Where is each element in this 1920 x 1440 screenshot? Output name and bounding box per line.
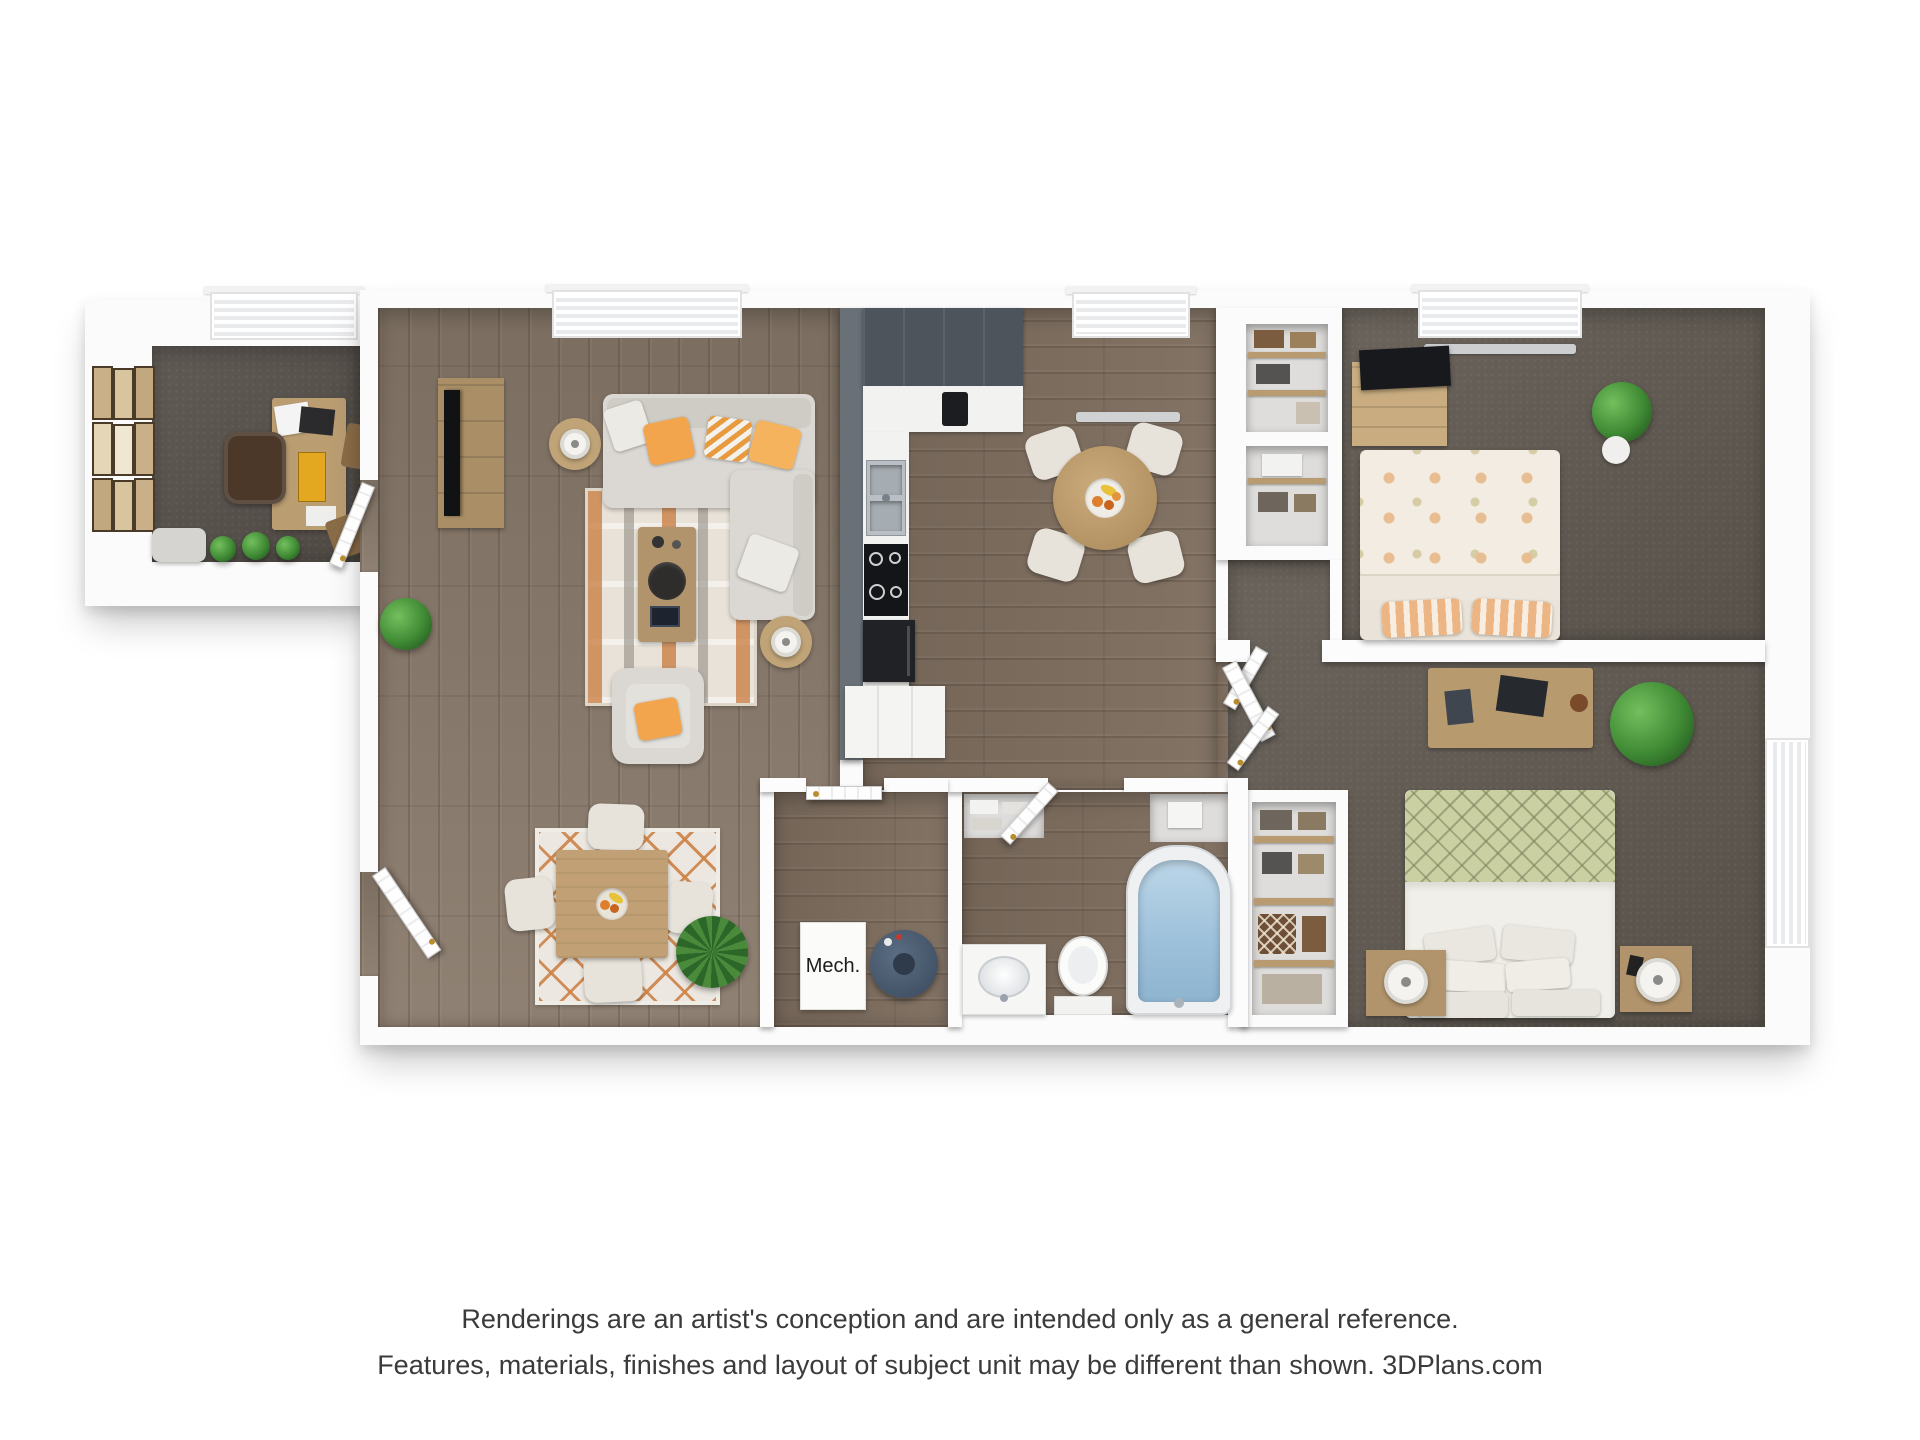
office-plant — [242, 532, 270, 560]
kitchen-base-cabinet — [845, 686, 945, 758]
living-window-blinds — [556, 294, 738, 334]
orange-fruit — [1092, 496, 1103, 507]
coffee-table-tray — [648, 562, 686, 600]
bedroom1-window — [1418, 290, 1582, 338]
closet-shelf — [1248, 352, 1326, 358]
picture-frame — [92, 366, 113, 420]
wall-bedrooms-divider — [1216, 640, 1250, 662]
closet-items — [1296, 402, 1320, 424]
wall-bedroom1-left — [1330, 560, 1342, 644]
bedroom2-pillow — [1512, 990, 1600, 1016]
closet-patterned-blanket — [1258, 914, 1296, 954]
office-window-blinds — [214, 296, 354, 336]
dining-chair — [503, 876, 556, 933]
picture-frame — [113, 424, 134, 476]
orange-fruit — [610, 904, 619, 913]
living-window — [552, 290, 742, 338]
closet-clothes — [1262, 974, 1322, 1004]
closet-shelf — [1254, 836, 1334, 843]
closet-items — [1294, 494, 1316, 512]
orange-fruit — [1104, 500, 1114, 510]
picture-frame — [113, 368, 134, 420]
bedroom2-book — [1444, 689, 1473, 726]
mech-unit: Mech. — [800, 922, 866, 1010]
floorplan: Mech. — [0, 0, 1920, 1440]
table-lamp-finial — [571, 440, 579, 448]
water-heater-valve — [884, 938, 892, 946]
dining-chair — [583, 953, 643, 1004]
orange-fruit — [1112, 492, 1121, 501]
bedroom2-green-blanket — [1405, 790, 1615, 882]
bedroom1-plant — [1592, 382, 1652, 442]
stove-burner — [869, 552, 883, 566]
stove-burner — [869, 584, 885, 600]
nightstand-lamp-base — [1653, 975, 1663, 985]
closet-clothes — [1298, 854, 1324, 874]
tablet — [650, 606, 680, 627]
mech-door-knob — [813, 791, 819, 797]
coffee-table-decor — [672, 540, 681, 549]
closet-shelf — [1248, 478, 1326, 484]
office-laptop — [299, 406, 336, 435]
closet-box — [1262, 454, 1302, 476]
bathroom-wall-left — [948, 778, 962, 1027]
sink-basin — [870, 501, 902, 531]
closet-items — [1256, 364, 1290, 384]
bedroom1-window-blinds — [1422, 294, 1578, 334]
bathroom-storage-niche — [1150, 794, 1228, 842]
closet-shelf — [1248, 390, 1326, 396]
water-heater-valve-red — [896, 934, 902, 940]
bedroom2-desk-ball — [1570, 694, 1588, 712]
bedroom1-pillow-striped — [1471, 598, 1553, 638]
bedroom2-window-blinds — [1769, 742, 1806, 944]
disclaimer-line-1: Renderings are an artist's conception an… — [0, 1296, 1920, 1342]
closet-items — [1254, 330, 1284, 348]
chaise-back-cushion — [793, 474, 813, 616]
closet-shelf — [1254, 898, 1334, 905]
kitchen-sink — [866, 460, 906, 536]
toilet-tank — [1054, 996, 1112, 1015]
orange-fruit — [600, 900, 610, 910]
sink-faucet — [1000, 994, 1008, 1002]
sofa-pillow-chevron — [703, 415, 752, 463]
bathroom-sink — [978, 956, 1030, 998]
office-gallery-wall — [92, 366, 152, 528]
bathroom-wall-top — [948, 778, 1048, 792]
storage-box — [1168, 802, 1202, 828]
office-yellow-box — [298, 452, 326, 502]
bedroom2-pillow — [1439, 960, 1507, 995]
closet-items — [1258, 492, 1288, 512]
mech-wall-left — [760, 778, 774, 1027]
nightstand-lamp-base — [1401, 977, 1411, 987]
picture-frame — [113, 480, 134, 532]
towel — [970, 800, 998, 814]
nook-window — [1072, 292, 1190, 338]
mech-wall-top — [760, 778, 806, 792]
office-loveseat — [152, 528, 206, 562]
disclaimer: Renderings are an artist's conception an… — [0, 1296, 1920, 1388]
bedroom2-closet — [1252, 802, 1336, 1015]
closet-clothes — [1298, 812, 1326, 830]
office-chair — [224, 432, 286, 504]
bedroom1-plant-pot — [1602, 436, 1630, 464]
bedroom2-laptop — [1496, 675, 1549, 717]
wall-bedrooms-divider — [1322, 640, 1765, 662]
office-window — [210, 292, 358, 340]
floorplan-rendering-canvas: Mech. Renderings are an artist's concept… — [0, 0, 1920, 1440]
coffee-maker — [942, 392, 968, 426]
toilet-seat — [1068, 946, 1098, 984]
coffee-table-decor — [652, 536, 664, 548]
mech-unit-label: Mech. — [801, 923, 865, 1009]
bathroom-wall-top — [1124, 778, 1240, 792]
bedroom2-window — [1765, 738, 1810, 948]
closet-items — [1290, 332, 1316, 348]
refrigerator — [863, 620, 915, 682]
closet-clothes — [1262, 852, 1292, 874]
bathtub-faucet — [1174, 998, 1184, 1008]
picture-frame — [134, 366, 155, 420]
living-room-plant — [380, 598, 432, 650]
office-plant — [210, 536, 236, 562]
bathtub-water — [1138, 860, 1220, 1002]
bedroom2-plant — [1610, 682, 1694, 766]
dining-chair — [587, 803, 645, 851]
stove-burner — [889, 552, 901, 564]
kitchen-upper-cabinets — [863, 308, 1023, 386]
closet-shelf — [1254, 960, 1334, 967]
closet-clothes — [1260, 810, 1292, 830]
mech-door — [806, 786, 882, 800]
closet-clothes — [1302, 916, 1326, 952]
armchair-pillow — [633, 696, 683, 741]
bedroom1-comforter — [1360, 450, 1560, 576]
mech-wall-top — [884, 778, 948, 792]
refrigerator-handle — [907, 626, 910, 676]
bedroom1-pillow-striped — [1381, 598, 1463, 638]
water-heater-cap — [893, 953, 915, 975]
nook-baseboard-heater — [1076, 412, 1180, 422]
hall-closet-lower — [1246, 446, 1328, 546]
office-plant — [276, 536, 300, 560]
bedroom1-tv — [1359, 346, 1451, 391]
table-lamp-finial — [782, 638, 790, 646]
hall-closet-upper — [1246, 324, 1328, 432]
palm-plant — [676, 916, 748, 988]
picture-frame — [92, 422, 113, 476]
stove-burner — [890, 586, 902, 598]
television — [444, 390, 460, 516]
entry-threshold — [360, 872, 378, 976]
stove — [864, 544, 908, 616]
towel — [972, 818, 1002, 830]
bedroom1-sheet-fold — [1360, 574, 1560, 600]
disclaimer-line-2: Features, materials, finishes and layout… — [0, 1342, 1920, 1388]
bedroom2-pillow — [1505, 957, 1571, 992]
picture-frame — [134, 422, 155, 476]
sink-faucet — [882, 494, 890, 502]
picture-frame — [134, 478, 155, 532]
sink-basin — [870, 465, 902, 495]
picture-frame — [92, 478, 113, 532]
nook-window-blinds — [1076, 296, 1186, 334]
